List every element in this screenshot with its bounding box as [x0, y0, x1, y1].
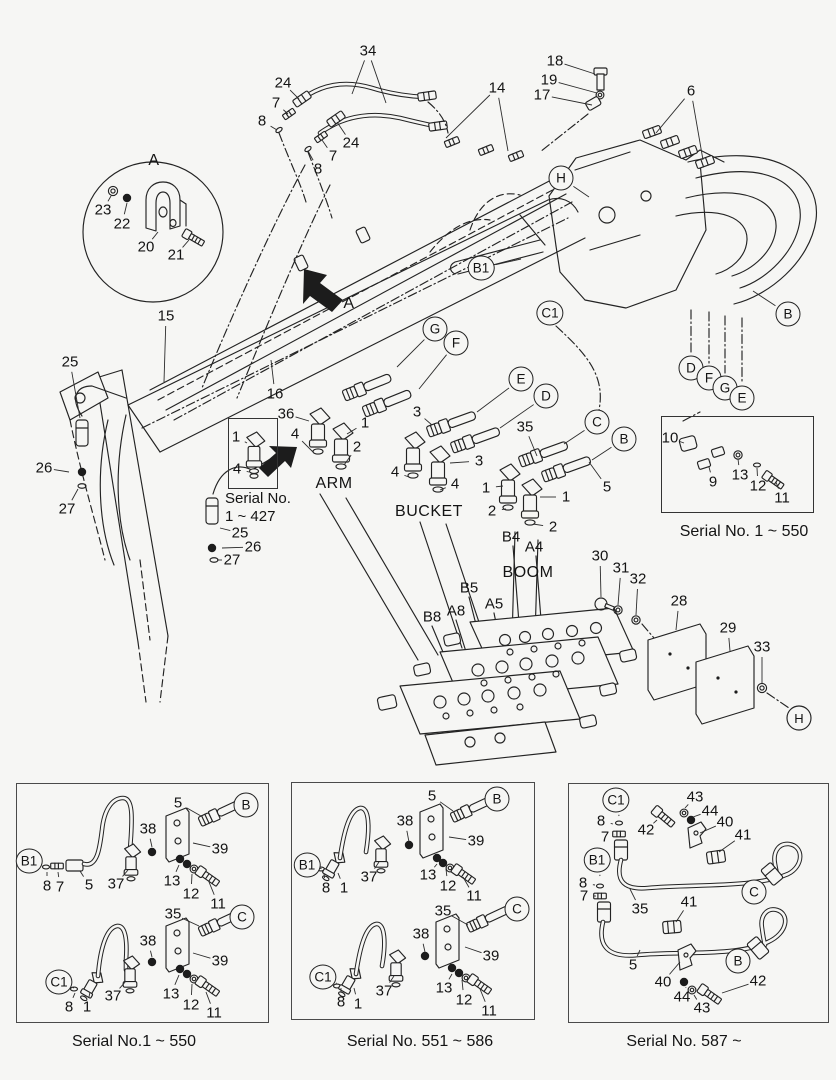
detail-circle-a [83, 162, 223, 302]
part-callout-38: 38 [413, 926, 430, 943]
part-callout-43: 43 [694, 1000, 711, 1017]
part-callout-26: 26 [36, 460, 53, 477]
part-callout-38: 38 [140, 821, 157, 838]
hose-pair-34 [275, 84, 448, 218]
part-callout-22: 22 [114, 216, 131, 233]
inset-box-serial-550 [661, 416, 814, 513]
part-callout-11: 11 [206, 1005, 222, 1022]
part-callout-35: 35 [517, 419, 534, 436]
part-callout-35: 35 [632, 901, 649, 918]
part-callout-A8: A8 [447, 603, 465, 620]
connector-label-D: D [534, 384, 559, 409]
connector-label-H: H [549, 166, 574, 191]
connector-label-E: E [730, 386, 755, 411]
part-callout-34: 34 [360, 43, 377, 60]
part-callout-41: 41 [681, 894, 698, 911]
part-callout-2: 2 [353, 439, 361, 456]
part-callout-17: 17 [534, 87, 551, 104]
part-callout-35: 35 [165, 906, 182, 923]
part-callout-5: 5 [85, 877, 93, 894]
part-callout-18: 18 [547, 53, 564, 70]
connector-label-B: B [612, 427, 637, 452]
part-callout-1: 1 [232, 429, 240, 446]
part-callout-3: 3 [475, 453, 483, 470]
part-callout-4: 4 [233, 461, 241, 478]
control-valve-art: H [377, 598, 811, 765]
part-callout-37: 37 [376, 983, 393, 1000]
connector-label-B1: B1 [468, 256, 495, 281]
panel-3-caption: Serial No. 587 ~ [626, 1033, 741, 1051]
part-callout-16: 16 [267, 386, 284, 403]
part-callout-28: 28 [671, 593, 688, 610]
part-callout-37: 37 [105, 988, 122, 1005]
part-callout-39: 39 [468, 833, 485, 850]
panel-2-caption: Serial No. 551 ~ 586 [347, 1033, 493, 1051]
section-label-BUCKET: BUCKET [395, 503, 463, 521]
part-callout-8: 8 [43, 878, 51, 895]
part-callout-29: 29 [720, 620, 737, 637]
part-callout-3: 3 [413, 404, 421, 421]
part-callout-8: 8 [258, 113, 266, 130]
part-callout-27: 27 [224, 552, 241, 569]
part-callout-30: 30 [592, 548, 609, 565]
part-callout-2: 2 [488, 503, 496, 520]
part-callout-5: 5 [629, 957, 637, 974]
part-callout-6: 6 [687, 83, 695, 100]
part-callout-11: 11 [481, 1003, 497, 1020]
part-callout-13: 13 [732, 467, 749, 484]
part-callout-33: 33 [754, 639, 771, 656]
part-callout-A5: A5 [485, 596, 503, 613]
connector-label-C1: C1 [309, 965, 336, 990]
inset-427-caption: Serial No. 1 ~ 427 [225, 490, 291, 526]
connector-label-B1: B1 [16, 849, 43, 874]
part-callout-14: 14 [489, 80, 506, 97]
part-callout-21: 21 [168, 247, 185, 264]
part-callout-B5: B5 [460, 580, 478, 597]
part-callout-24: 24 [343, 135, 360, 152]
part-callout-1: 1 [83, 999, 91, 1016]
part-callout-1: 1 [361, 415, 369, 432]
part-callout-8: 8 [337, 994, 345, 1011]
part-callout-1: 1 [562, 489, 570, 506]
part-callout-42: 42 [750, 973, 767, 990]
part-callout-37: 37 [108, 876, 125, 893]
connector-label-B1: B1 [584, 848, 611, 873]
part-callout-35: 35 [435, 903, 452, 920]
part-callout-10: 10 [662, 430, 679, 447]
part-callout-7: 7 [56, 879, 64, 896]
inset-427-caption-line2: 1 ~ 427 [225, 508, 291, 526]
part-callout-23: 23 [95, 202, 112, 219]
part-callout-44: 44 [674, 989, 691, 1006]
part-callout-B4: B4 [502, 529, 520, 546]
svg-text:H: H [794, 711, 803, 726]
part-callout-5: 5 [428, 788, 436, 805]
part-callout-5: 5 [174, 795, 182, 812]
connector-label-C: C [585, 410, 610, 435]
panel-serial-587 [568, 783, 829, 1023]
connector-label-B: B [485, 787, 510, 812]
part-callout-12: 12 [440, 878, 457, 895]
part-callout-32: 32 [630, 571, 647, 588]
part-callout-40: 40 [717, 814, 734, 831]
part-callout-13: 13 [420, 867, 437, 884]
section-label-BOOM: BOOM [503, 564, 554, 582]
part-callout-1: 1 [340, 880, 348, 897]
part-callout-27: 27 [59, 501, 76, 518]
part-callout-8: 8 [314, 161, 322, 178]
connector-label-F: F [444, 331, 469, 356]
part-callout-8: 8 [322, 880, 330, 897]
part-callout-42: 42 [638, 822, 655, 839]
part-callout-11: 11 [466, 888, 482, 905]
connector-label-C: C [230, 905, 255, 930]
part-callout-B8: B8 [423, 609, 441, 626]
connector-label-E: E [509, 367, 534, 392]
part-callout-12: 12 [183, 886, 200, 903]
part-callout-36: 36 [278, 406, 295, 423]
connector-label-B: B [776, 302, 801, 327]
part-callout-9: 9 [709, 474, 717, 491]
inset-550-caption: Serial No. 1 ~ 550 [680, 523, 809, 541]
section-label-A: A [148, 152, 159, 170]
part-callout-37: 37 [361, 869, 378, 886]
connector-label-B1: B1 [294, 853, 321, 878]
connector-label-C1: C1 [536, 301, 563, 326]
part-callout-24: 24 [275, 75, 292, 92]
inset-427-caption-line1: Serial No. [225, 490, 291, 508]
part-callout-4: 4 [291, 426, 299, 443]
machine-body-art [430, 68, 816, 410]
part-callout-26: 26 [245, 539, 262, 556]
section-label-ARM: ARM [315, 475, 352, 493]
part-callout-7: 7 [580, 888, 588, 905]
part-callout-38: 38 [140, 933, 157, 950]
part-callout-41: 41 [735, 827, 752, 844]
part-callout-39: 39 [483, 948, 500, 965]
part-callout-39: 39 [212, 953, 229, 970]
part-callout-12: 12 [183, 997, 200, 1014]
panel-1-caption: Serial No.1 ~ 550 [72, 1033, 196, 1051]
connector-label-C: C [742, 880, 767, 905]
part-callout-1: 1 [354, 996, 362, 1013]
connector-label-C1: C1 [602, 788, 629, 813]
part-callout-11: 11 [210, 896, 226, 913]
part-callout-25: 25 [62, 354, 79, 371]
part-callout-31: 31 [613, 560, 630, 577]
part-callout-7: 7 [329, 148, 337, 165]
part-callout-4: 4 [391, 464, 399, 481]
parts-diagram-page: H [0, 0, 836, 1080]
part-callout-5: 5 [603, 479, 611, 496]
section-label-A: A [343, 295, 354, 313]
part-callout-13: 13 [164, 873, 181, 890]
connector-label-B: B [726, 949, 751, 974]
part-callout-12: 12 [456, 992, 473, 1009]
part-callout-40: 40 [655, 974, 672, 991]
part-callout-38: 38 [397, 813, 414, 830]
part-callout-13: 13 [163, 986, 180, 1003]
part-callout-4: 4 [451, 476, 459, 493]
part-callout-2: 2 [549, 519, 557, 536]
part-callout-39: 39 [212, 841, 229, 858]
part-callout-8: 8 [597, 813, 605, 830]
part-callout-13: 13 [436, 980, 453, 997]
part-callout-20: 20 [138, 239, 155, 256]
part-callout-12: 12 [750, 478, 767, 495]
part-callout-8: 8 [65, 999, 73, 1016]
connector-label-B: B [234, 793, 259, 818]
part-callout-7: 7 [601, 829, 609, 846]
connector-label-C: C [505, 897, 530, 922]
part-callout-1: 1 [482, 480, 490, 497]
part-callout-15: 15 [158, 308, 175, 325]
part-callout-7: 7 [272, 95, 280, 112]
part-callout-11: 11 [774, 490, 790, 507]
connector-label-C1: C1 [45, 970, 72, 995]
part-callout-A4: A4 [525, 539, 543, 556]
